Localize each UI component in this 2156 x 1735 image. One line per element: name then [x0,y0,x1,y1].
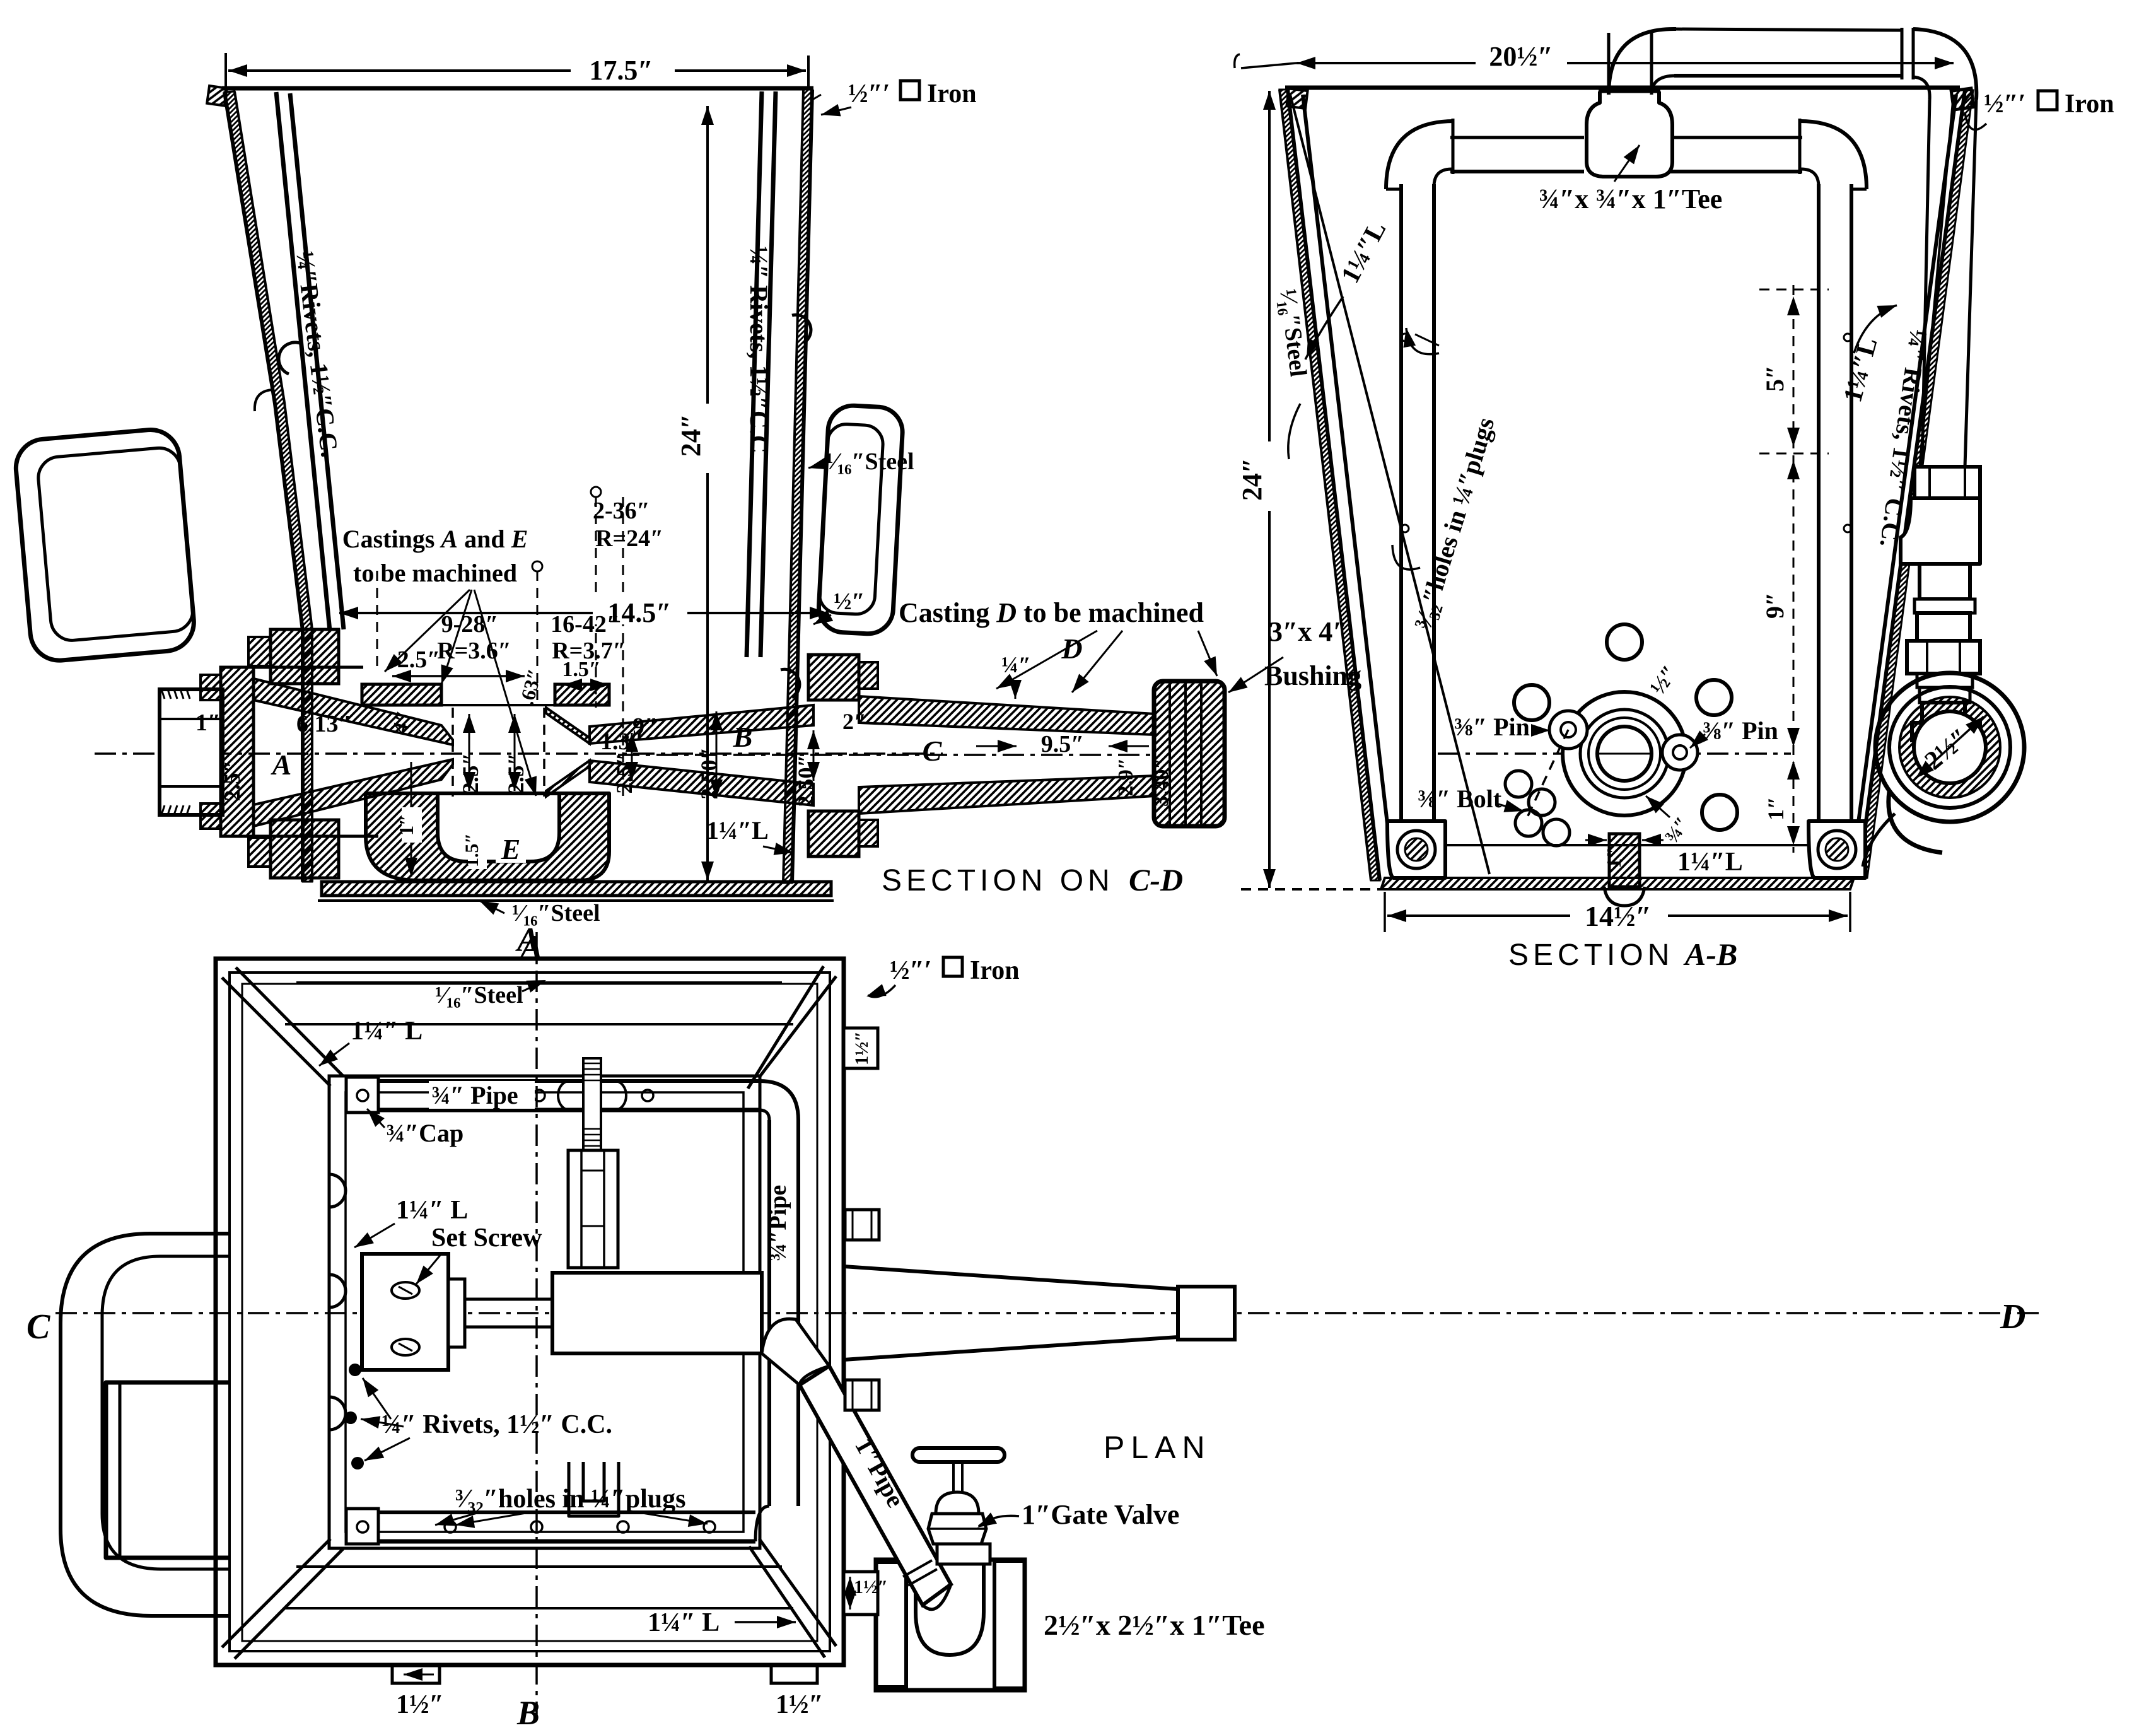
svg-text:1.5″: 1.5″ [562,658,600,681]
svg-text:³⁄₃₂″holes in ¼″plugs: ³⁄₃₂″holes in ¼″plugs [455,1485,685,1514]
svg-text:Casting D to be machined: Casting D to be machined [899,597,1204,628]
svg-text:¹⁄₁₆″Steel: ¹⁄₁₆″Steel [826,448,914,475]
svg-text:1¼″ L: 1¼″ L [396,1196,468,1225]
svg-text:1½″: 1½″ [854,1577,888,1598]
svg-text:Iron: Iron [927,79,977,108]
svg-text:⅜″ Pin: ⅜″ Pin [1454,713,1530,741]
svg-text:2.50″: 2.50″ [696,747,721,800]
svg-text:to be machined: to be machined [353,559,517,587]
svg-text:20½″: 20½″ [1489,41,1553,72]
svg-text:B: B [516,1694,540,1732]
svg-text:SECTION ON: SECTION ON [882,864,1114,897]
svg-text:¼″ Rivets, 1½″ C.C.: ¼″ Rivets, 1½″ C.C. [382,1410,612,1439]
svg-text:2.5″: 2.5″ [612,753,637,794]
svg-text:2.9″: 2.9″ [1114,757,1138,796]
svg-text:Iron: Iron [970,956,1020,985]
svg-text:1¼″L: 1¼″L [1677,848,1743,877]
svg-text:¾″ Pipe: ¾″ Pipe [431,1081,518,1109]
svg-text:24″: 24″ [1237,458,1267,501]
svg-text:1.5″: 1.5″ [462,833,482,867]
svg-text:⅜″ Bolt: ⅜″ Bolt [1418,785,1502,813]
svg-text:E: E [501,833,521,865]
svg-text:9″: 9″ [1761,592,1789,619]
svg-text:Iron: Iron [2065,90,2114,119]
svg-text:½″′: ½″′ [890,956,932,985]
svg-text:2.5″: 2.5″ [219,761,245,802]
svg-text:1½″: 1½″ [776,1690,824,1719]
svg-text:C-D: C-D [1129,862,1183,897]
svg-text:¼″ Rivets, 1½″C.C.: ¼″ Rivets, 1½″C.C. [745,246,773,460]
svg-text:1″: 1″ [195,710,221,736]
svg-text:¹⁄₁₆″Steel: ¹⁄₁₆″Steel [435,982,523,1008]
svg-text:9-28″: 9-28″ [441,611,499,638]
svg-text:Set Screw: Set Screw [431,1224,542,1253]
svg-text:1½″: 1½″ [851,1031,872,1065]
svg-text:1″Gate Valve: 1″Gate Valve [1022,1499,1179,1530]
svg-text:¾″Pipe: ¾″Pipe [765,1185,791,1261]
svg-text:16-42″: 16-42″ [551,611,620,638]
svg-text:1¼″ L: 1¼″ L [351,1017,422,1046]
svg-text:A: A [515,921,540,959]
svg-text:6.13″: 6.13″ [296,711,352,737]
svg-text:2.5″: 2.5″ [397,646,441,673]
svg-text:B: B [733,721,753,753]
svg-text:3.40″: 3.40″ [1150,757,1173,807]
svg-text:½″′: ½″′ [848,79,890,108]
svg-text:9″: 9″ [632,713,658,740]
svg-text:24″: 24″ [675,414,706,457]
svg-text:¼″: ¼″ [1001,652,1031,677]
svg-text:C: C [923,735,943,767]
svg-text:2-36″: 2-36″ [593,498,650,524]
svg-text:1½″: 1½″ [396,1690,444,1719]
svg-text:SECTION: SECTION [1508,938,1674,972]
svg-text:5″: 5″ [1761,365,1789,392]
svg-text:¾″x ¾″x 1″Tee: ¾″x ¾″x 1″Tee [1539,184,1722,214]
svg-text:½″: ½″ [834,588,865,615]
svg-text:¾″Cap: ¾″Cap [386,1119,463,1147]
svg-text:C: C [26,1307,50,1347]
svg-text:3″x 4″: 3″x 4″ [1269,616,1348,647]
svg-text:17.5″: 17.5″ [589,55,653,86]
svg-text:½″′: ½″′ [1984,90,2026,119]
svg-text:R=24″: R=24″ [595,525,663,552]
svg-text:PLAN: PLAN [1104,1430,1211,1465]
svg-text:1¼″L: 1¼″L [706,816,769,844]
svg-text:9.5″: 9.5″ [1041,731,1085,757]
svg-text:1″: 1″ [395,814,417,836]
svg-text:1″: 1″ [1602,847,1625,868]
svg-text:1″: 1″ [1763,797,1788,821]
svg-text:Castings A and E: Castings A and E [342,525,528,553]
svg-text:⅜″ Pin: ⅜″ Pin [1703,716,1778,745]
svg-text:2½″x 2½″x 1″Tee: 2½″x 2½″x 1″Tee [1044,1609,1265,1641]
svg-text:2.5″: 2.5″ [503,753,528,794]
svg-text:A-B: A-B [1683,937,1737,972]
svg-text:D: D [2000,1297,2025,1336]
svg-text:2.5″: 2.5″ [458,753,483,794]
svg-text:1¼″ L: 1¼″ L [648,1608,720,1637]
svg-text:2″: 2″ [842,709,866,734]
svg-text:2.50″: 2.50″ [793,755,819,807]
svg-text:A: A [271,749,292,781]
